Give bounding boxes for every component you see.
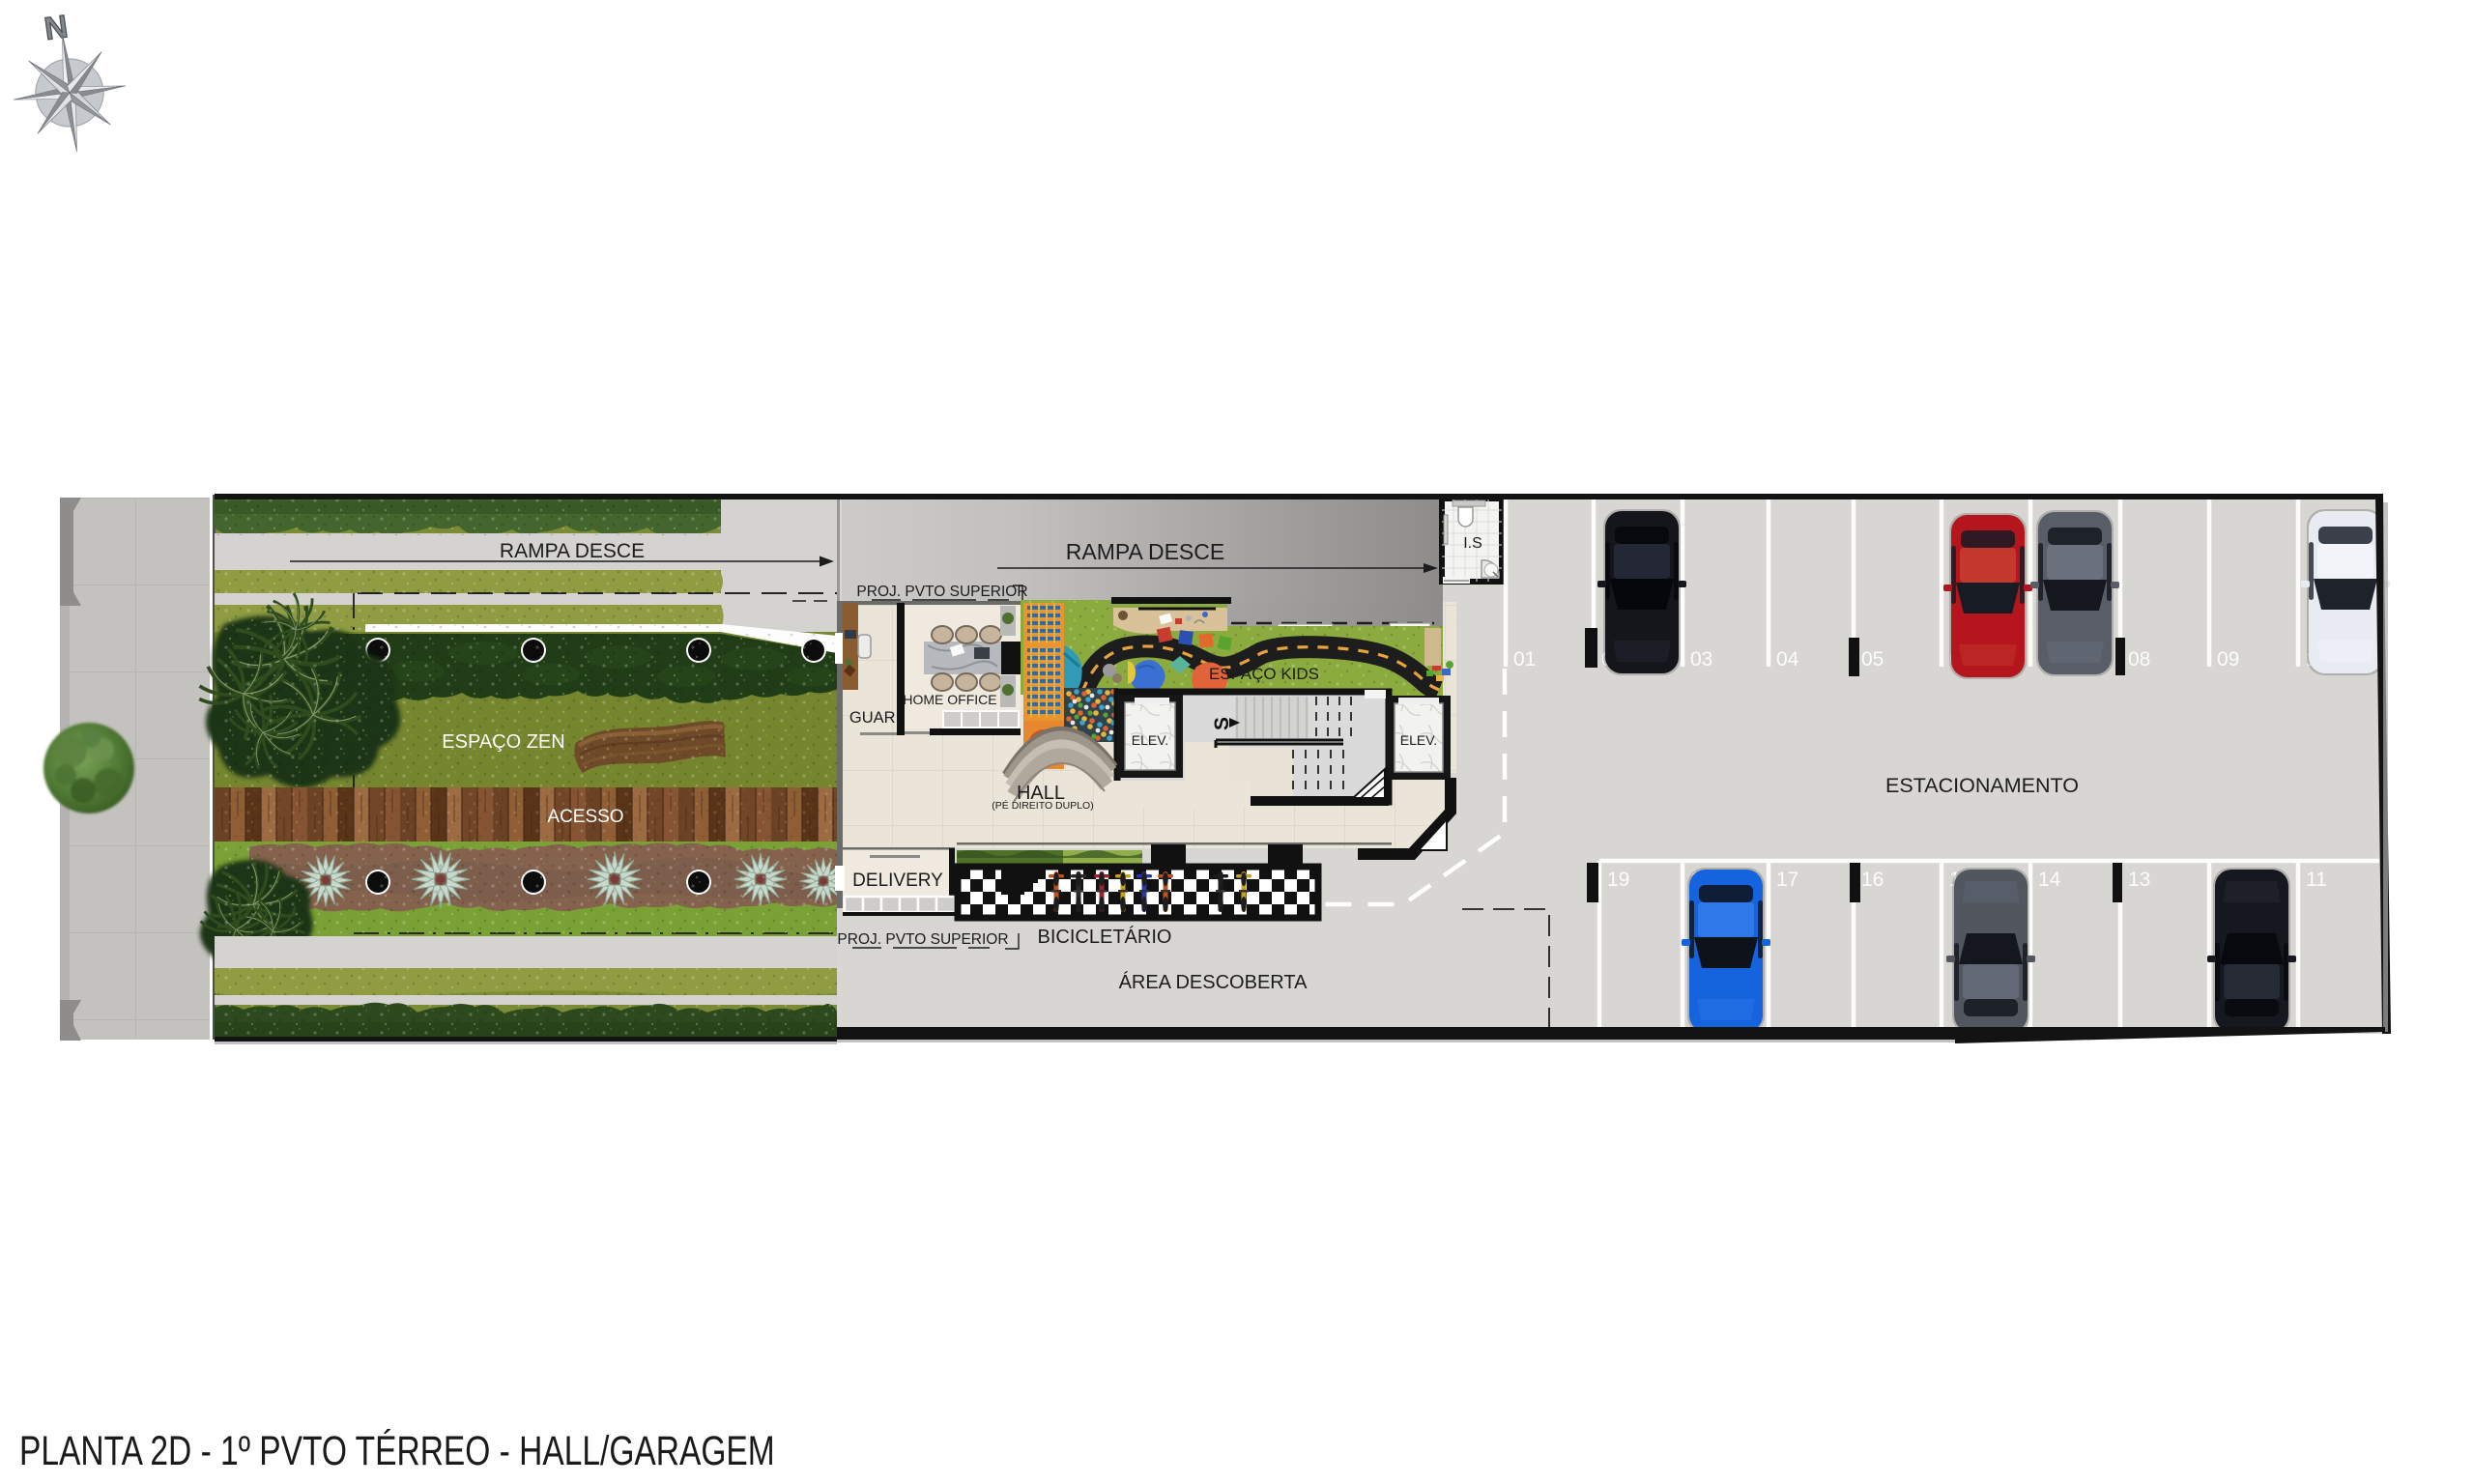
svg-text:ELEV.: ELEV. [1132, 732, 1168, 748]
svg-text:05: 05 [1861, 648, 1884, 671]
svg-text:ÁREA DESCOBERTA: ÁREA DESCOBERTA [1119, 971, 1309, 993]
svg-text:11: 11 [2306, 869, 2327, 891]
svg-text:09: 09 [2217, 648, 2239, 671]
svg-text:BICICLETÁRIO: BICICLETÁRIO [1038, 926, 1172, 948]
svg-text:01: 01 [1513, 648, 1536, 671]
svg-text:ELEV.: ELEV. [1400, 732, 1437, 748]
svg-text:RAMPA DESCE: RAMPA DESCE [1066, 539, 1224, 564]
svg-text:GUAR.: GUAR. [849, 709, 900, 727]
svg-text:ESTACIONAMENTO: ESTACIONAMENTO [1885, 774, 2079, 797]
svg-text:RAMPA DESCE: RAMPA DESCE [500, 540, 645, 562]
svg-text:03: 03 [1690, 648, 1712, 671]
svg-text:HOME OFFICE: HOME OFFICE [903, 692, 996, 707]
svg-text:DELIVERY: DELIVERY [852, 870, 943, 891]
svg-text:17: 17 [1776, 869, 1798, 891]
svg-text:16: 16 [1861, 869, 1884, 891]
svg-text:08: 08 [2128, 648, 2150, 671]
svg-text:PROJ. PVTO SUPERIOR: PROJ. PVTO SUPERIOR [837, 931, 1008, 948]
svg-text:14: 14 [2038, 869, 2061, 891]
svg-text:19: 19 [1607, 869, 1629, 891]
svg-text:PROJ. PVTO SUPERIOR: PROJ. PVTO SUPERIOR [856, 584, 1027, 600]
svg-text:PLANTA 2D - 1º PVTO TÉRREO - H: PLANTA 2D - 1º PVTO TÉRREO - HALL/GARAGE… [19, 1428, 775, 1474]
svg-text:04: 04 [1776, 648, 1799, 671]
svg-text:N: N [43, 8, 71, 46]
svg-text:I.S: I.S [1463, 535, 1482, 552]
svg-text:(PÉ DIREITO DUPLO): (PÉ DIREITO DUPLO) [992, 799, 1093, 812]
svg-text:ESPAÇO KIDS: ESPAÇO KIDS [1209, 665, 1319, 683]
svg-text:13: 13 [2128, 869, 2150, 891]
